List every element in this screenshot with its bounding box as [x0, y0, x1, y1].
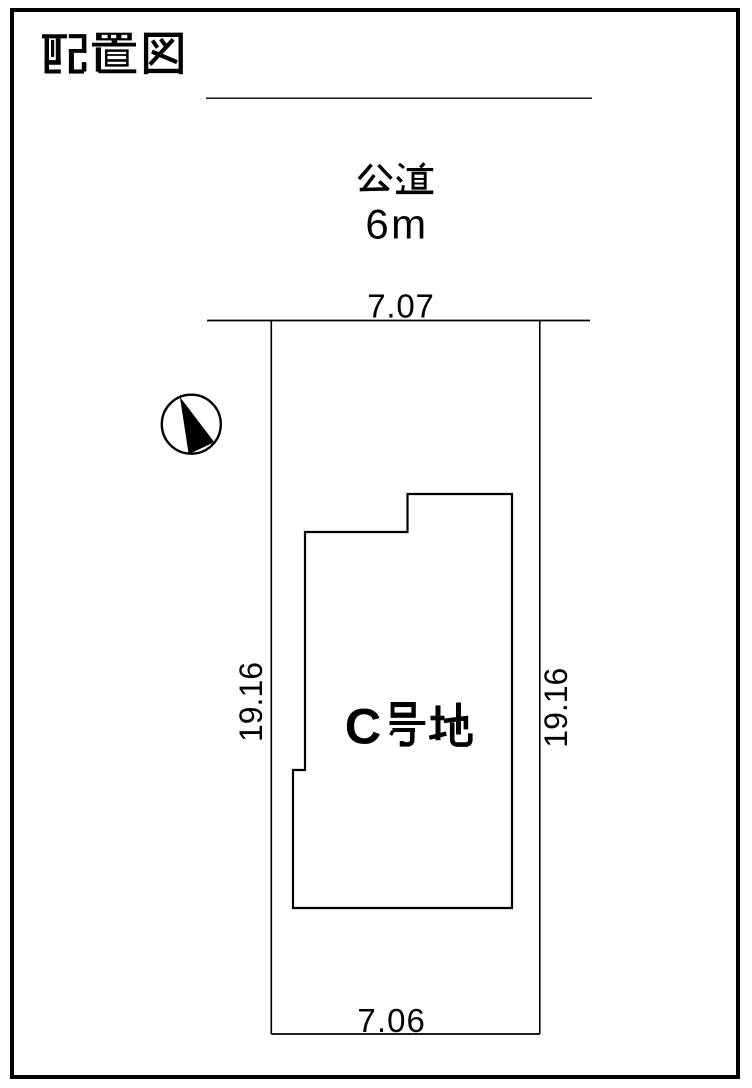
svg-text:C: C: [345, 698, 381, 755]
svg-text:19.16: 19.16: [233, 662, 269, 742]
svg-text:19.16: 19.16: [538, 668, 574, 748]
svg-text:7.07: 7.07: [367, 288, 434, 325]
svg-text:7.06: 7.06: [357, 1002, 426, 1039]
svg-text:6m: 6m: [365, 201, 428, 248]
